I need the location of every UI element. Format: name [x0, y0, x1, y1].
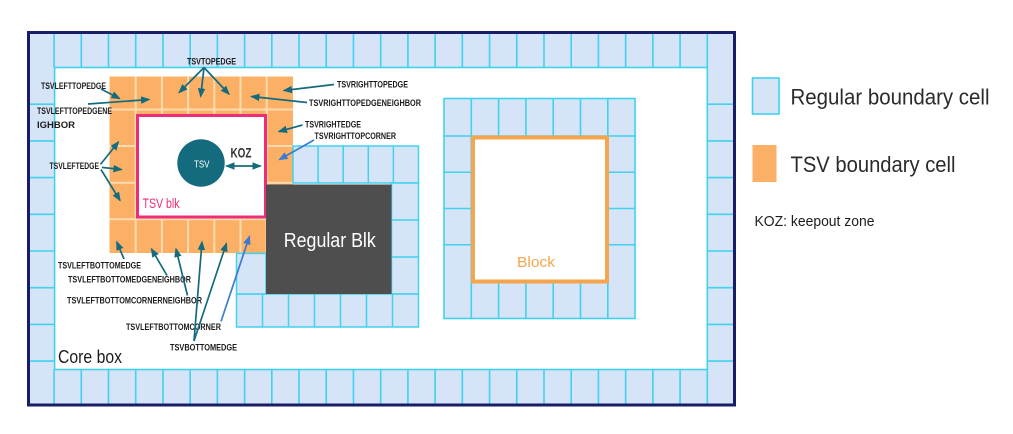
svg-text:Core box: Core box — [58, 347, 122, 367]
svg-text:TSV: TSV — [194, 160, 210, 171]
svg-text:TSV boundary cell: TSV boundary cell — [791, 152, 956, 177]
svg-text:Block: Block — [517, 254, 556, 271]
svg-text:TSVLEFTEDGE: TSVLEFTEDGE — [50, 161, 100, 172]
svg-text:TSVRIGHTTOPEDGE: TSVRIGHTTOPEDGE — [337, 80, 408, 91]
svg-text:TSVRIGHTTOPCORNER: TSVRIGHTTOPCORNER — [315, 131, 397, 142]
svg-text:TSVLEFTTOPEDGE: TSVLEFTTOPEDGE — [41, 81, 106, 92]
svg-text:TSVRIGHTEDGE: TSVRIGHTEDGE — [305, 120, 361, 131]
svg-text:TSVLEFTBOTTOMEDGENEIGHBOR: TSVLEFTBOTTOMEDGENEIGHBOR — [68, 275, 191, 286]
svg-text:TSVLEFTTOPEDGENE: TSVLEFTTOPEDGENE — [37, 106, 112, 117]
svg-text:TSVLEFTBOTTOMEDGE: TSVLEFTBOTTOMEDGE — [58, 261, 141, 272]
svg-text:Regular Blk: Regular Blk — [284, 230, 377, 252]
svg-text:TSVTOPEDGE: TSVTOPEDGE — [187, 57, 236, 68]
svg-text:TSVLEFTBOTTOMCORNER: TSVLEFTBOTTOMCORNER — [126, 322, 221, 333]
svg-text:TSVBOTTOMEDGE: TSVBOTTOMEDGE — [170, 343, 237, 354]
svg-text:TSVRIGHTTOPEDGENEIGHBOR: TSVRIGHTTOPEDGENEIGHBOR — [309, 98, 421, 109]
svg-text:KOZ: keepout zone: KOZ: keepout zone — [755, 213, 875, 230]
svg-text:TSV blk: TSV blk — [143, 196, 180, 211]
svg-text:TSVLEFTBOTTOMCORNERNEIGHBOR: TSVLEFTBOTTOMCORNERNEIGHBOR — [67, 296, 202, 307]
svg-text:IGHBOR: IGHBOR — [37, 120, 75, 131]
svg-text:Regular boundary cell: Regular boundary cell — [791, 85, 990, 110]
svg-text:KOZ: KOZ — [231, 146, 252, 161]
